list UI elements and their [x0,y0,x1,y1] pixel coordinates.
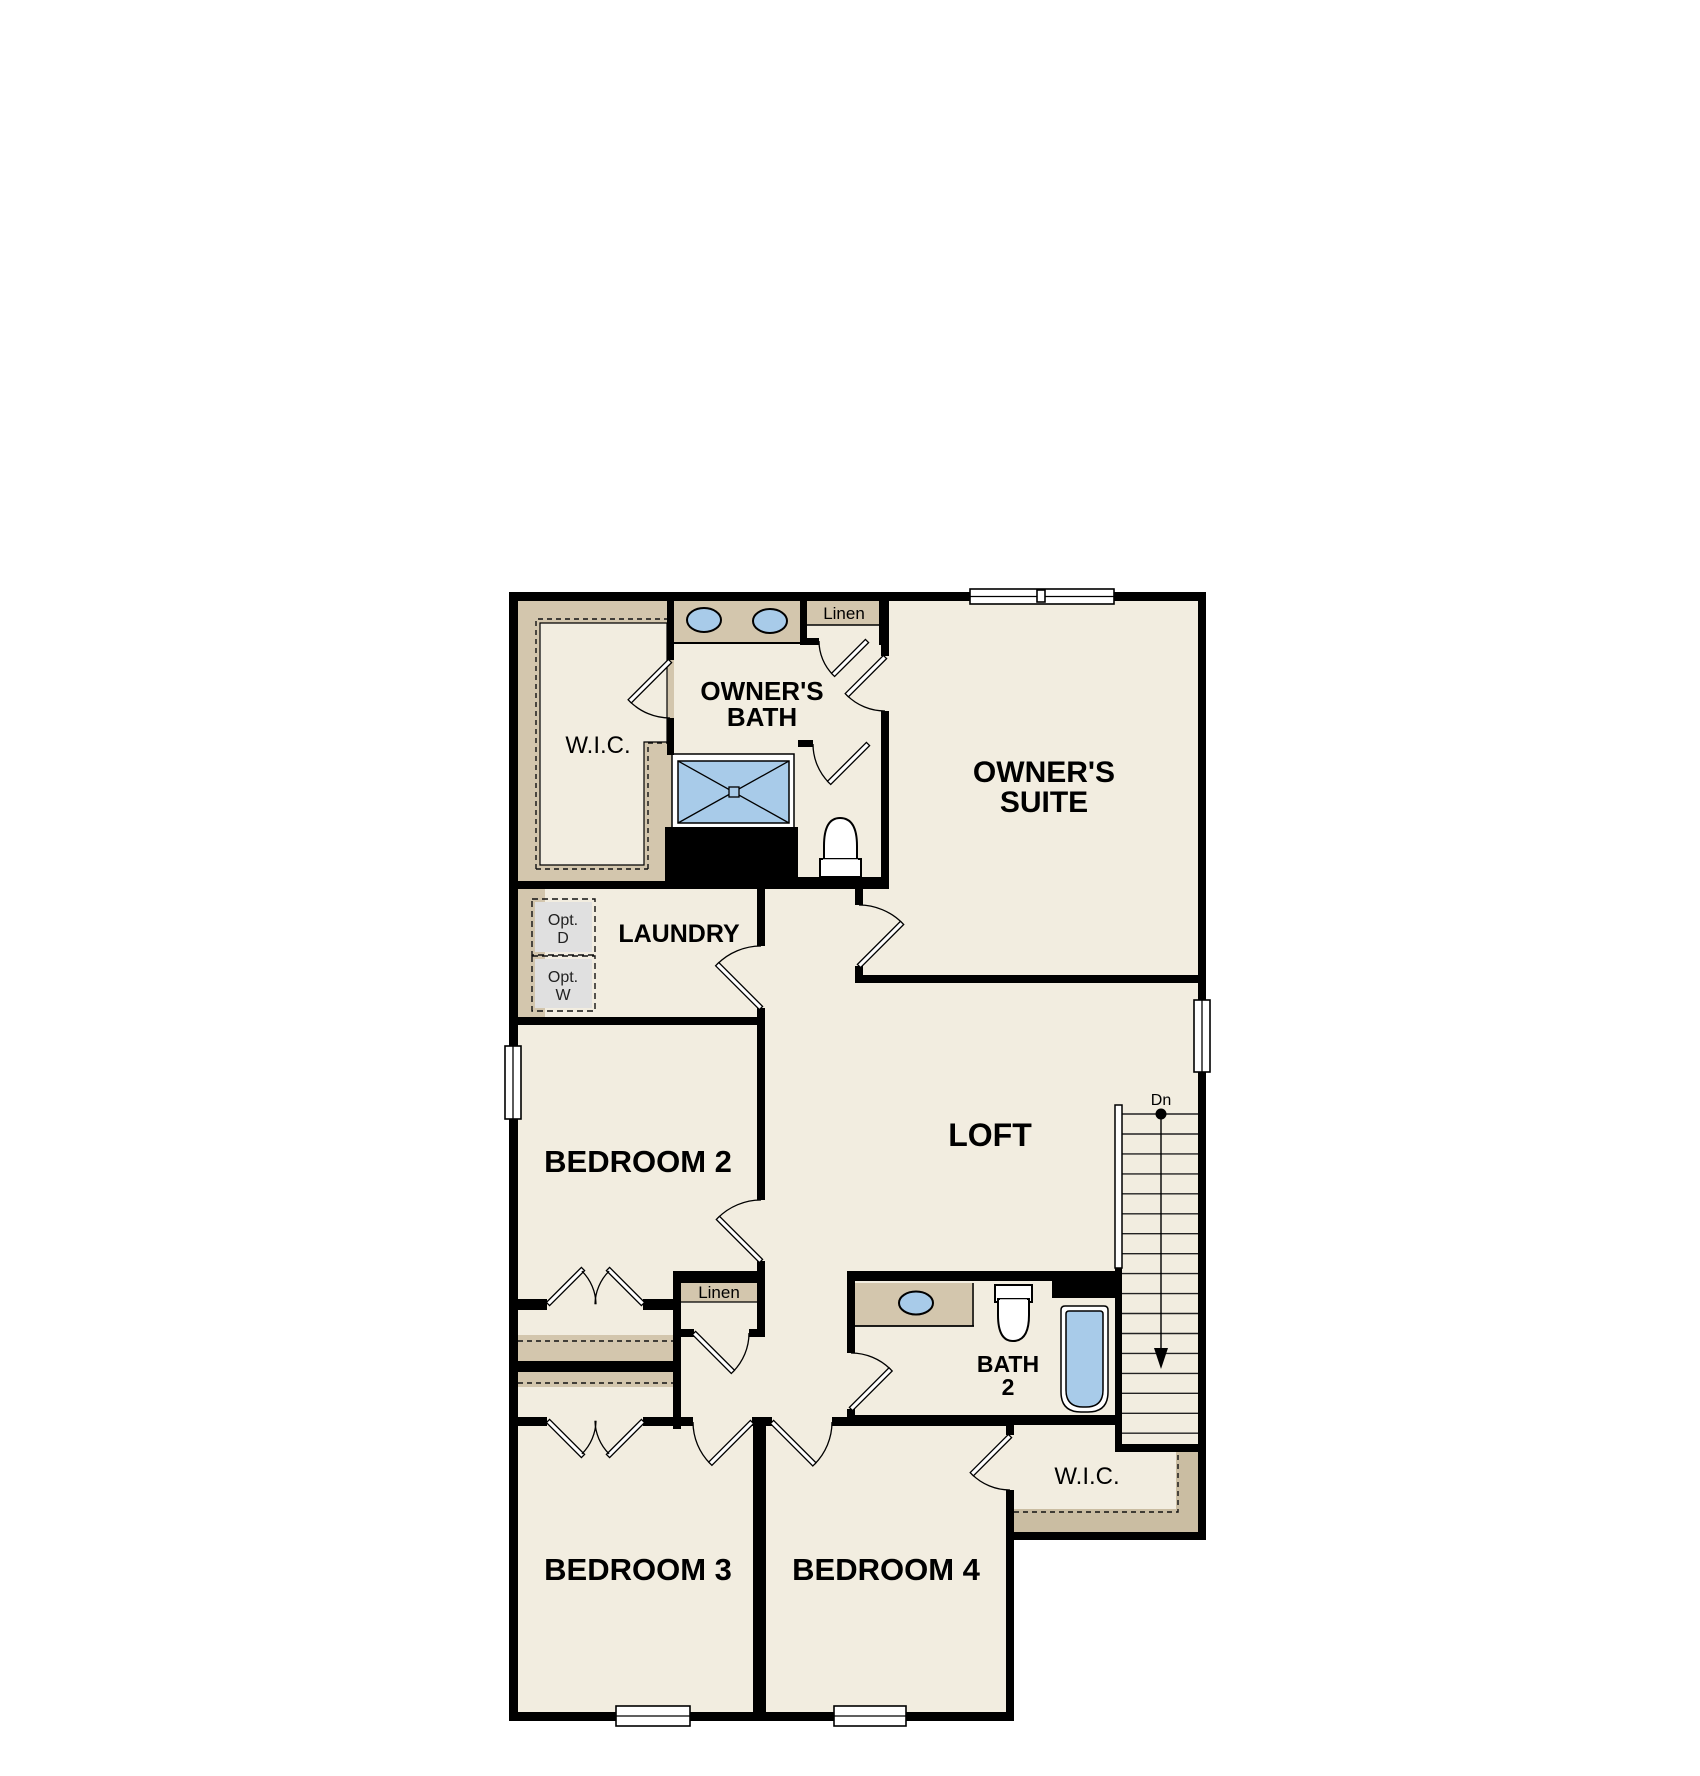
svg-text:Linen: Linen [823,604,865,623]
svg-text:W.I.C.: W.I.C. [565,732,630,759]
svg-text:LAUNDRY: LAUNDRY [618,920,740,948]
svg-text:BATH: BATH [727,702,797,732]
svg-text:D: D [557,930,569,947]
svg-text:BEDROOM 2: BEDROOM 2 [544,1144,732,1179]
svg-text:LOFT: LOFT [948,1117,1032,1153]
svg-text:BEDROOM 4: BEDROOM 4 [792,1552,981,1587]
svg-text:Opt.: Opt. [548,969,578,986]
svg-text:2: 2 [1002,1374,1015,1400]
svg-text:Dn: Dn [1151,1092,1171,1109]
svg-text:BEDROOM 3: BEDROOM 3 [544,1552,732,1587]
svg-text:Linen: Linen [698,1283,740,1302]
svg-text:W: W [555,987,571,1004]
svg-text:Opt.: Opt. [548,912,578,929]
svg-text:OWNER'S: OWNER'S [973,756,1115,789]
svg-text:W.I.C.: W.I.C. [1054,1463,1119,1490]
svg-text:SUITE: SUITE [1000,786,1088,819]
